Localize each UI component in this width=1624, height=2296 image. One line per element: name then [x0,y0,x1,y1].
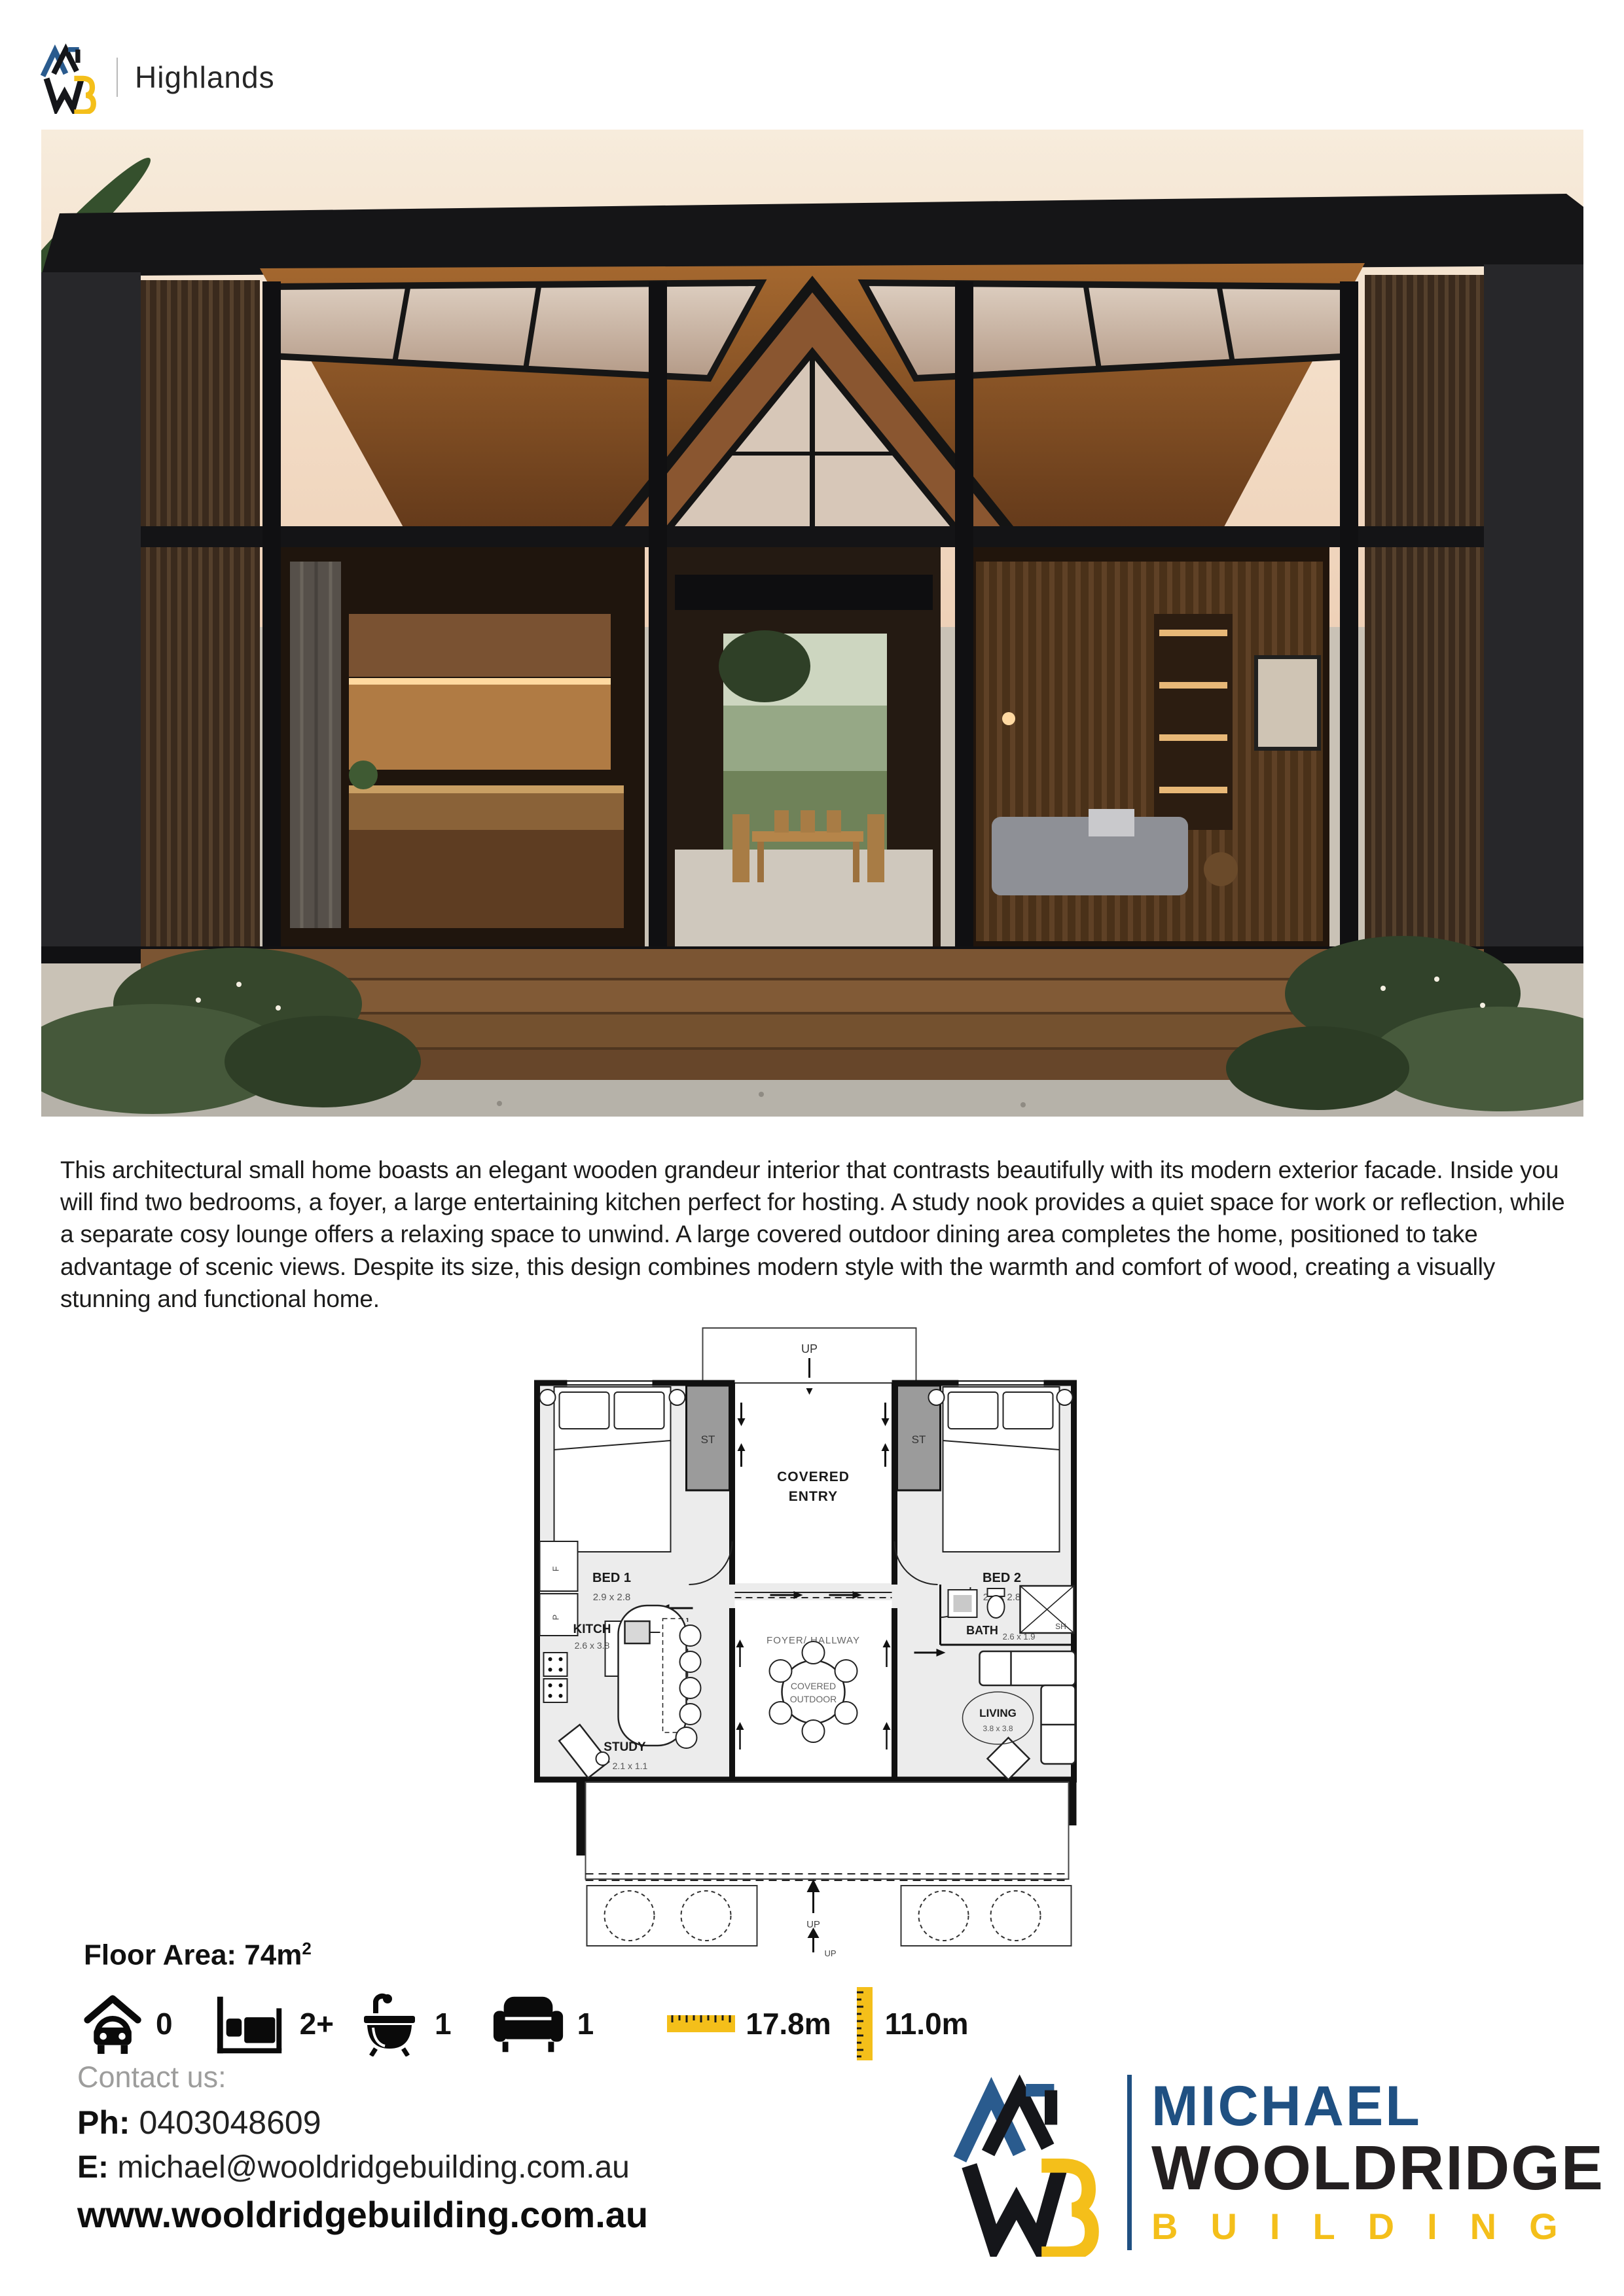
contact-email: E: michael@wooldridgebuilding.com.au [77,2149,648,2185]
plan-storage-right-label: ST [912,1433,926,1446]
sofa-icon [490,1991,567,2056]
bed-icon [212,1991,289,2056]
plan-bed1-name: BED 1 [592,1571,631,1585]
company-tagline: BUILDING [1151,2206,1604,2247]
plan-entry-line2: ENTRY [789,1489,838,1504]
header: Highlands [39,41,275,114]
carport-icon [82,1991,145,2056]
depth-value: 11.0m [885,2006,969,2041]
company-first-name: MICHAEL [1151,2078,1604,2136]
contact-heading: Contact us: [77,2060,648,2094]
description-paragraph: This architectural small home boasts an … [60,1154,1566,1315]
email-address: michael@wooldridgebuilding.com.au [117,2150,629,2185]
floor-plan-drawing: UP ST ST [520,1325,1093,1960]
plan-outdoor-line2: OUTDOOR [790,1694,837,1704]
plan-bed2-name: BED 2 [983,1571,1021,1585]
brochure-page: Highlands [0,0,1624,2296]
plan-up-top-label: UP [801,1342,818,1355]
email-label: E: [77,2150,109,2185]
plan-deck-up2: UP [824,1948,836,1958]
horizontal-ruler-icon [667,2009,735,2038]
plan-fridge-label: F [551,1566,561,1571]
page-title: Highlands [135,60,275,95]
plan-bath-name: BATH [966,1624,998,1637]
deck-planters [587,1886,1072,1946]
stat-width: 17.8m [667,2006,831,2041]
house-photo [41,130,1583,1117]
plan-kitchen-dims: 2.6 x 3.8 [575,1640,610,1651]
bed1-furniture [540,1387,685,1552]
bath-icon [356,1991,424,2056]
mwb-logo-icon [39,41,99,114]
plan-living-name: LIVING [979,1707,1017,1719]
kitchen-window [281,547,645,948]
plan-bath-dims: 2.6 x 1.9 [1003,1632,1036,1641]
footer-logo-text: MICHAEL WOOLDRIDGE BUILDING [1151,2078,1604,2246]
company-last-name: WOOLDRIDGE [1151,2136,1604,2201]
contact-phone: Ph: 0403048609 [77,2104,648,2142]
bedroom-count: 2+ [300,2006,334,2041]
plan-storage-left-label: ST [701,1433,715,1446]
bed2-furniture [929,1387,1073,1552]
mwb-logo-large-icon [950,2068,1108,2257]
entry-breezeway [667,547,941,948]
floor-area-label: Floor Area: 74m2 [84,1939,312,1972]
plan-study-name: STUDY [604,1740,646,1754]
stat-depth: 11.0m [855,1987,969,2060]
floor-plan: UP ST ST [520,1325,1093,1960]
contact-block: Contact us: Ph: 0403048609 E: michael@wo… [77,2060,648,2236]
living-window [965,547,1329,948]
vertical-ruler-icon [855,1987,875,2060]
stat-bedrooms: 2+ [212,1991,334,2056]
stat-carport: 0 [82,1991,173,2056]
phone-number: 0403048609 [139,2104,321,2141]
footer-logo: MICHAEL WOOLDRIDGE BUILDING [950,2068,1604,2257]
website-url: www.wooldridgebuilding.com.au [77,2193,648,2236]
plan-outdoor-line1: COVERED [791,1681,836,1691]
plan-living-dims: 3.8 x 3.8 [983,1724,1013,1733]
plan-pantry-label: P [551,1615,561,1621]
width-value: 17.8m [746,2006,831,2041]
stat-living: 1 [490,1991,594,2056]
stats-row: 0 2+ 1 [82,1986,969,2062]
plan-kitchen-name: KITCH [573,1623,611,1636]
carport-count: 0 [156,2006,173,2041]
plan-study-dims: 2.1 x 1.1 [613,1761,648,1771]
plan-bed1-dims: 2.9 x 2.8 [593,1592,631,1603]
header-divider [117,58,118,97]
house-photo-illustration [41,130,1583,1117]
phone-label: Ph: [77,2104,130,2141]
plan-shower-label: SH [1055,1622,1066,1631]
bathroom-count: 1 [435,2006,452,2041]
plan-entry-line1: COVERED [777,1469,850,1484]
living-count: 1 [577,2006,594,2041]
footer-logo-divider [1127,2075,1132,2250]
stat-bathrooms: 1 [356,1991,452,2056]
